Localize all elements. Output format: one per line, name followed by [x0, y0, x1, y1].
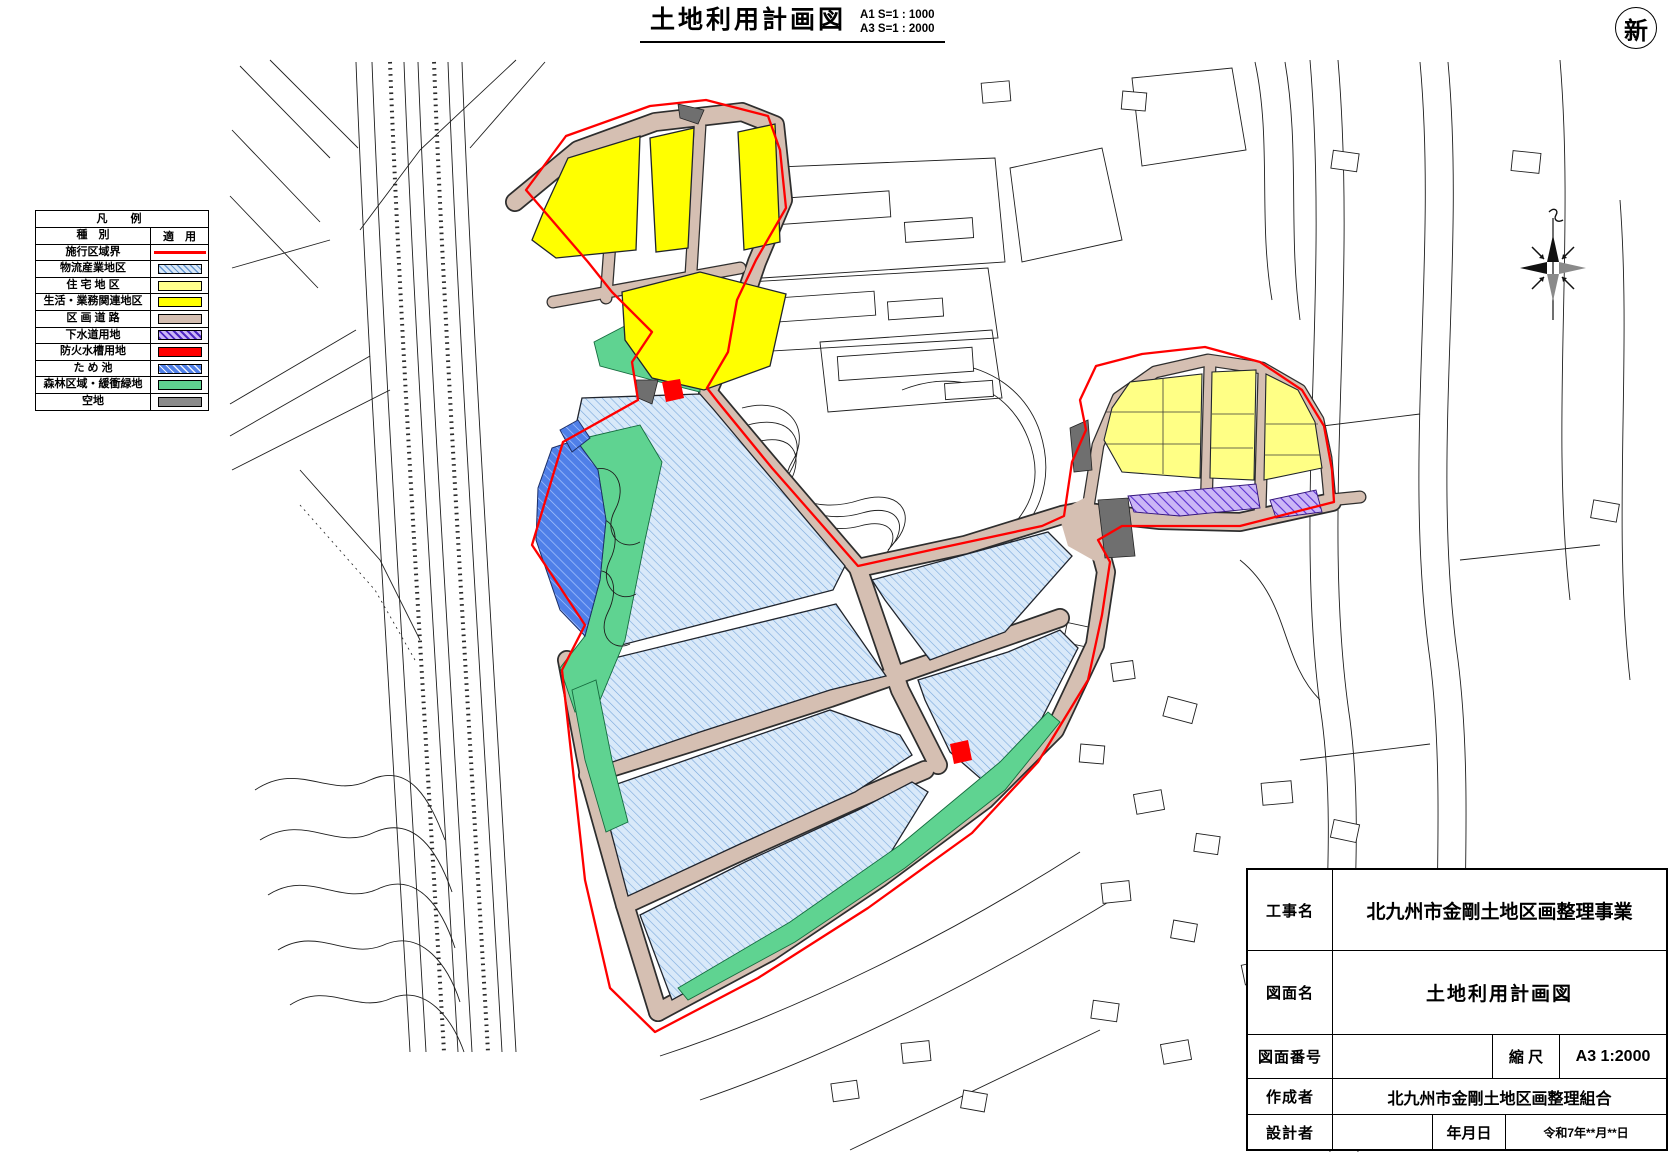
stamp-text: 新 — [1624, 11, 1648, 46]
drawing-number-value — [1333, 1035, 1492, 1078]
legend-label: 空地 — [36, 394, 151, 410]
land-use-plan-sheet: { "title": { "text": "土地利用計画図", "scale_a… — [0, 0, 1671, 1154]
legend-row-boundary: 施行区域界 — [36, 245, 208, 262]
legend-col-type: 種 別 — [36, 228, 151, 244]
north-compass-icon — [1520, 209, 1586, 320]
legend-label: 区 画 道 路 — [36, 311, 151, 327]
field-label: 図面番号 — [1248, 1035, 1333, 1078]
page-title: 土地利用計画図 — [650, 6, 846, 34]
legend-row-roads: 区 画 道 路 — [36, 311, 208, 328]
drawing-name: 土地利用計画図 — [1333, 951, 1666, 1034]
legend-row-logistics: 物流産業地区 — [36, 261, 208, 278]
open-space-swatch — [158, 397, 202, 407]
boundary-line-swatch — [154, 251, 206, 253]
field-label: 設計者 — [1248, 1115, 1333, 1149]
title-block-row-project: 工事名 北九州市金剛土地区画整理事業 — [1248, 870, 1666, 951]
scale-value: A3 1:2000 — [1560, 1035, 1666, 1078]
legend-label: 防火水槽用地 — [36, 344, 151, 360]
scale-a3: A3 S=1 : 2000 — [860, 22, 934, 36]
field-label: 図面名 — [1248, 951, 1333, 1034]
legend-row-residential: 住 宅 地 区 — [36, 278, 208, 295]
life-business-swatch — [158, 297, 202, 307]
legend-label: 施行区域界 — [36, 245, 151, 261]
legend-col-use: 適 用 — [151, 228, 208, 244]
zone-life-business — [532, 124, 786, 390]
title-block-row-designer-date: 設計者 年月日 令和7年**月**日 — [1248, 1115, 1666, 1149]
road-swatch — [158, 314, 202, 324]
legend-label: 住 宅 地 区 — [36, 278, 151, 294]
date-value: 令和7年**月**日 — [1506, 1115, 1666, 1149]
legend-row-pond: た め 池 — [36, 361, 208, 378]
legend-label: 物流産業地区 — [36, 261, 151, 277]
legend-title: 凡 例 — [36, 211, 208, 228]
field-label: 工事名 — [1248, 870, 1333, 950]
drawing-title: 土地利用計画図 A1 S=1 : 1000 A3 S=1 : 2000 — [640, 6, 945, 43]
legend-row-fire-tank: 防火水槽用地 — [36, 344, 208, 361]
title-block-row-author: 作成者 北九州市金剛土地区画整理組合 — [1248, 1079, 1666, 1115]
legend-label: 森林区域・緩衝緑地 — [36, 377, 151, 393]
scale-notes: A1 S=1 : 1000 A3 S=1 : 2000 — [860, 8, 934, 36]
green-buffer-swatch — [158, 380, 202, 390]
designer-value — [1333, 1115, 1432, 1149]
title-block: 工事名 北九州市金剛土地区画整理事業 図面名 土地利用計画図 図面番号 縮 尺 … — [1246, 868, 1668, 1151]
legend: 凡 例 種 別 適 用 施行区域界 物流産業地区 住 宅 地 区 生活・業務関連… — [35, 210, 209, 411]
legend-row-sewer: 下水道用地 — [36, 328, 208, 345]
title-block-row-number-scale: 図面番号 縮 尺 A3 1:2000 — [1248, 1035, 1666, 1079]
author-name: 北九州市金剛土地区画整理組合 — [1333, 1079, 1666, 1114]
legend-header-row: 種 別 適 用 — [36, 228, 208, 245]
scale-label: 縮 尺 — [1492, 1035, 1560, 1078]
pond-swatch — [158, 364, 202, 374]
title-block-row-drawing-name: 図面名 土地利用計画図 — [1248, 951, 1666, 1035]
legend-row-open-space: 空地 — [36, 394, 208, 410]
scale-a1: A1 S=1 : 1000 — [860, 8, 934, 22]
sewer-swatch — [158, 330, 202, 340]
legend-label: 下水道用地 — [36, 328, 151, 344]
project-name: 北九州市金剛土地区画整理事業 — [1333, 870, 1666, 950]
residential-swatch — [158, 281, 202, 291]
legend-row-green: 森林区域・緩衝緑地 — [36, 377, 208, 394]
date-label: 年月日 — [1432, 1115, 1506, 1149]
logistics-swatch — [158, 264, 202, 274]
legend-label: た め 池 — [36, 361, 151, 377]
legend-row-life-business: 生活・業務関連地区 — [36, 294, 208, 311]
legend-label: 生活・業務関連地区 — [36, 294, 151, 310]
fire-tank-swatch — [158, 347, 202, 357]
zone-residential — [1104, 370, 1322, 480]
field-label: 作成者 — [1248, 1079, 1333, 1114]
revision-stamp: 新 — [1615, 7, 1657, 49]
